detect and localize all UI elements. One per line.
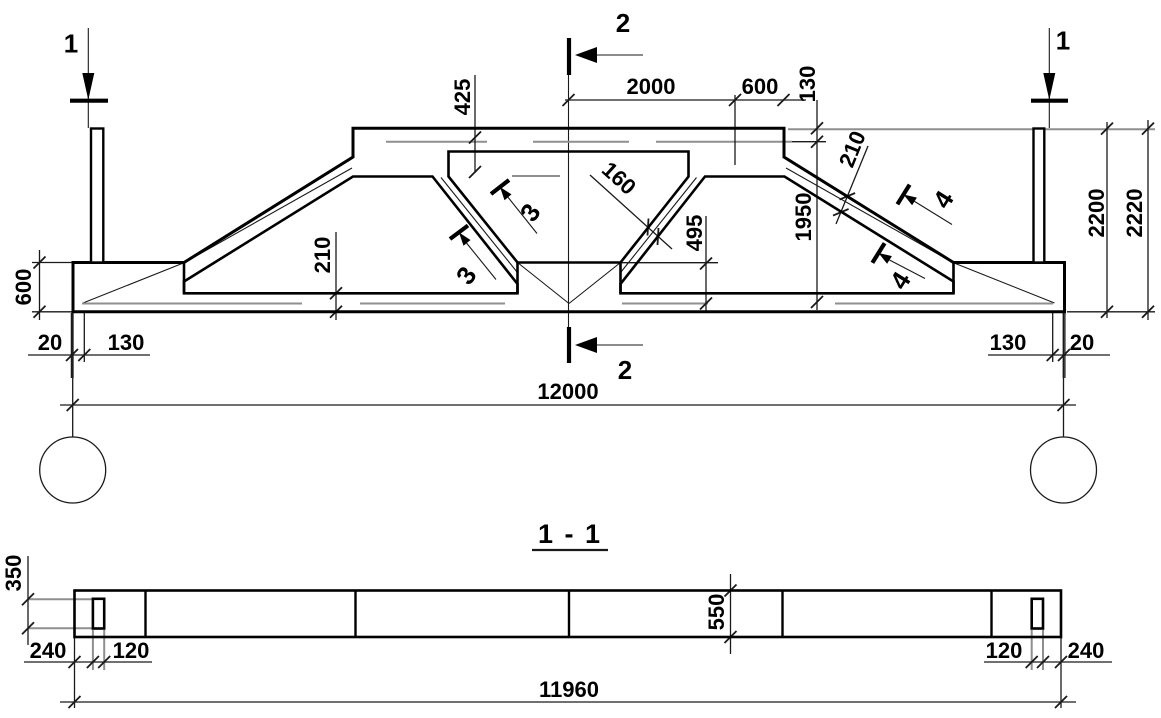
beam-dividers (146, 591, 992, 636)
section-4-leaders (890, 201, 953, 278)
dim-240-left-label: 240 (30, 638, 67, 663)
section-1-1-view (75, 550, 1062, 637)
section-1-right-label: 1 (1056, 26, 1070, 56)
section-4-lower-label: 4 (884, 266, 917, 295)
section-3-upper-arrow-icon (500, 187, 512, 200)
section-2-top-arrow-icon (575, 47, 597, 63)
section-1-left-arrow-icon (82, 73, 94, 100)
labels: 1 1 2 2 3 3 4 4 2000 600 130 425 160 195… (1, 8, 1147, 702)
section-2-top-label: 2 (616, 8, 630, 38)
section-1-left-label: 1 (64, 29, 78, 59)
right-post (1034, 129, 1045, 263)
left-block-crease (83, 168, 352, 303)
dim-600-top-label: 600 (742, 74, 779, 99)
dim-425-label: 425 (450, 79, 475, 116)
dim-350-label: 350 (1, 555, 26, 592)
dim-1950-label: 1950 (791, 193, 816, 242)
dim-240-right-label: 240 (1068, 638, 1105, 663)
dim-130-left-label: 130 (108, 330, 145, 355)
section-1-right-arrow-icon (1043, 73, 1055, 100)
dim-210-chord-label: 210 (310, 237, 335, 274)
grid-bubble-left (40, 437, 106, 503)
dim-160-label: 160 (597, 157, 641, 200)
beam-outline (75, 591, 1062, 638)
right-block-crease (786, 168, 1055, 303)
dim-2220-label: 2220 (1122, 189, 1147, 238)
section-4-lower-arrow-icon (879, 253, 892, 264)
dim-11960-label: 11960 (539, 677, 599, 702)
dim-495-label: 495 (682, 215, 707, 252)
dim-130-right-label: 130 (990, 330, 1027, 355)
dim-2200-label: 2200 (1084, 189, 1109, 238)
truss-drawing-canvas: 1 1 2 2 3 3 4 4 2000 600 130 425 160 195… (0, 0, 1161, 718)
section-2-bottom-label: 2 (618, 355, 632, 385)
dim-20-right-label: 20 (1070, 330, 1094, 355)
right-post-section (1032, 599, 1043, 629)
section-3-lower-arrow-icon (459, 233, 471, 246)
dim-2000-label: 2000 (627, 74, 676, 99)
section-2-bottom-arrow-icon (575, 337, 597, 353)
grid-bubbles (40, 437, 1097, 503)
dim-12000-label: 12000 (537, 379, 598, 404)
dim-120-right-label: 120 (986, 638, 1023, 663)
section-3-lower-label: 3 (450, 261, 483, 290)
cad-drawing-page: 1 1 2 2 3 3 4 4 2000 600 130 425 160 195… (0, 0, 1161, 718)
dim-550-label: 550 (704, 594, 729, 631)
dim-120-left-label: 120 (113, 638, 150, 663)
left-post-section (93, 599, 104, 629)
grid-bubble-right (1031, 437, 1097, 503)
section-4-upper-label: 4 (927, 185, 960, 214)
dim-210-slope-label: 210 (834, 127, 871, 170)
dim-20-left-label: 20 (38, 330, 62, 355)
section-3-upper-label: 3 (514, 198, 547, 227)
section-view-title: 1 - 1 (538, 519, 602, 549)
dim-130-top-label: 130 (795, 66, 820, 103)
dim-600-left-label: 600 (11, 269, 36, 306)
left-post (91, 129, 103, 263)
section-4-upper-arrow-icon (904, 195, 917, 206)
